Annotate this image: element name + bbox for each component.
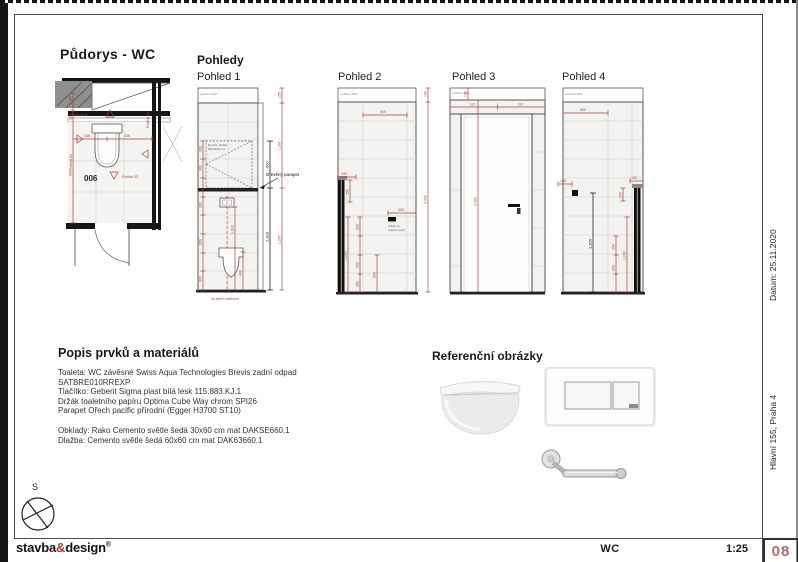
materials-title: Popis prvků a materiálů	[58, 346, 388, 360]
dim-label: 1,200	[278, 235, 282, 244]
view-marker-label: Pohled 01	[72, 113, 88, 117]
dim-label: 430	[341, 172, 347, 176]
dim-label: 600	[580, 108, 586, 112]
dim-label: 350	[346, 189, 350, 195]
view-marker-label: Pohled 03	[122, 175, 138, 179]
company-logo: stavba&design®	[16, 540, 111, 555]
door-swing-arc	[95, 230, 129, 263]
dim-label: 300	[199, 165, 203, 171]
dim-note: na střed místnosti	[211, 297, 239, 301]
inspection-door-label: 600x600 mm	[208, 147, 226, 151]
dim-label: 600	[265, 161, 270, 168]
door-frame-cap	[337, 176, 347, 180]
sidebar-divider	[762, 14, 763, 562]
dim-label: 300	[199, 202, 203, 208]
logo-ampersand: &	[56, 540, 65, 555]
paper-holder-label: toaletní papír	[388, 228, 406, 232]
reference-flush-plate-image	[543, 366, 659, 430]
north-compass: S	[18, 478, 60, 536]
material-line: Tlačítko: Geberit Sigma plast bílá lesk …	[58, 387, 388, 397]
door-handle	[508, 204, 520, 207]
dim-label: 380	[69, 96, 73, 102]
wooden-sill	[198, 188, 258, 192]
dim-label: 1/2	[518, 103, 523, 107]
reference-toilet-image	[426, 362, 534, 442]
elevation-2-title: Pohled 2	[338, 71, 381, 83]
paper-holder-symbol	[388, 217, 396, 222]
reference-images-title: Referenční obrázky	[432, 349, 543, 363]
dim-label: 300	[199, 146, 203, 152]
ceiling-label: podhled SDK	[565, 92, 583, 96]
dim-label: 200	[619, 192, 623, 198]
hatched-wall-mass	[55, 81, 92, 108]
dim-label: 150	[278, 92, 282, 98]
dim-label: 600	[69, 170, 73, 176]
dim-label: 300	[356, 281, 360, 287]
elevation-3-drawing: podhled SDK 100 1/2 1/2 2,400	[448, 84, 548, 300]
view-marker-label: Pohled 04	[69, 154, 73, 170]
dim-label: 435	[124, 134, 130, 138]
elevation-4-drawing: podhled SDK 600 150 150 1,300 200	[558, 84, 690, 300]
material-line: Obklady: Rako Cemento světle šedá 30x60 …	[58, 426, 388, 436]
drawing-scale: 1:25	[698, 543, 748, 555]
dim-label: 150	[631, 176, 637, 180]
ceiling-label: podhled SDK	[340, 92, 358, 96]
dim-label: 300	[199, 276, 203, 282]
view-marker-label: Pohled 02	[146, 112, 150, 128]
north-label: S	[32, 482, 38, 492]
elevation-1-title: Pohled 1	[197, 71, 240, 83]
material-line: Dlažba: Cemento světle šedá 60x60 cm mat…	[58, 436, 388, 446]
dim-label: 150	[424, 91, 428, 97]
door-frame-cap	[632, 184, 643, 188]
dim-label: 1/2	[470, 103, 475, 107]
drawing-sheet: Půdorys - WC Pohledy Pohled 1 Pohled 2 P…	[0, 0, 798, 562]
material-line: Toaleta: WC závěsné Swiss Aqua Technolog…	[58, 368, 388, 378]
elevation-3-title: Pohled 3	[452, 71, 495, 83]
top-dotted-border	[0, 0, 798, 3]
dim-label: 150	[560, 179, 566, 183]
dim-label: 1,300	[265, 231, 270, 242]
date-label: Datum: 25.11.2020	[768, 210, 788, 320]
ceiling-label: podhled SDK	[200, 92, 218, 96]
dim-label: 1,200	[623, 251, 627, 260]
toilet-plan-symbol	[92, 124, 122, 167]
floor-plan-title: Půdorys - WC	[60, 46, 155, 62]
door-elevation	[461, 114, 532, 292]
floor-plan-drawing: Pohled 01 Pohled 02 Pohled 03 Pohled 04 …	[48, 66, 188, 276]
dim-label: 600	[373, 272, 377, 278]
switch-symbol	[572, 190, 578, 196]
dim-label: 300	[612, 265, 616, 271]
dim-label: 100	[464, 91, 468, 97]
dim-label: 1,300	[588, 238, 593, 249]
sill-callout: Dřevěný parapet	[266, 172, 300, 177]
elevation-4-title: Pohled 4	[562, 71, 605, 83]
elevations-title: Pohledy	[197, 53, 244, 67]
materials-section: Popis prvků a materiálů Toaleta: WC závě…	[58, 346, 388, 445]
sheet-number: 08	[763, 538, 798, 562]
dim-label: 300	[356, 224, 360, 230]
room-number: 006	[84, 174, 98, 183]
dim-label: 1,200	[278, 141, 282, 150]
dim-label: 2,400	[474, 197, 478, 206]
dim-label: 300	[356, 262, 360, 268]
dim-label: 1,200	[344, 251, 348, 260]
dim-label: 400	[239, 270, 243, 276]
elevation-1-drawing: podhled SDK Revizní dvířka 600x600 mm Dř…	[194, 84, 300, 308]
elevation-2-drawing: podhled SDK 600 150 2,400 430 350	[334, 84, 448, 300]
material-line: Parapet Ořech pacific přírodní (Egger H3…	[58, 406, 388, 416]
reference-paper-holder-image	[533, 446, 629, 490]
dim-label: 600	[380, 110, 386, 114]
dim-label: 2,400	[424, 195, 428, 204]
dim-label: 300	[398, 208, 404, 212]
material-line: SATBRE010RREXP	[58, 378, 388, 388]
dim-label: 435	[84, 134, 90, 138]
material-line: Držák toaletního papíru Optima Cube Way …	[58, 397, 388, 407]
dim-label: 300	[612, 244, 616, 250]
dim-label: 180	[69, 114, 73, 120]
left-edge-bar	[0, 0, 8, 562]
drawing-name: WC	[560, 543, 660, 555]
dim-label: 1,000	[231, 225, 235, 234]
dim-label: 300	[199, 239, 203, 245]
address-label: Hlavní 155, Praha 4	[768, 372, 788, 492]
